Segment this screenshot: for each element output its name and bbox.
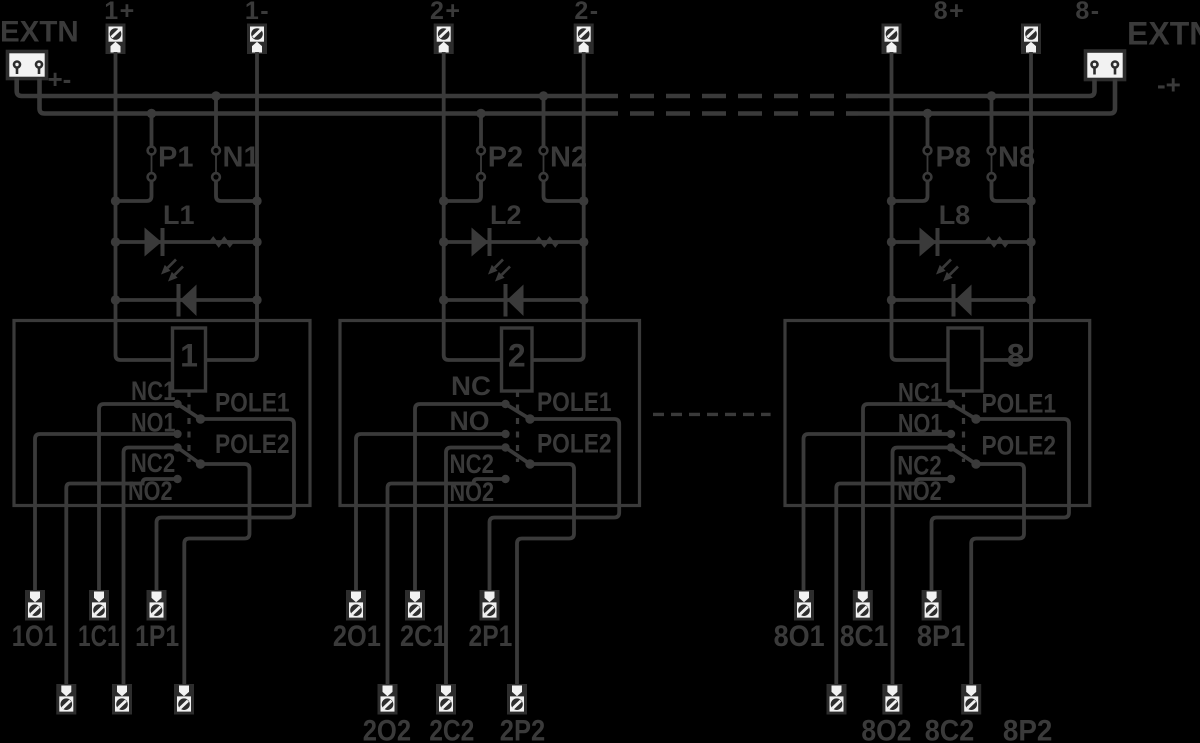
- svg-text:2C1: 2C1: [400, 620, 447, 653]
- svg-text:2-: 2-: [574, 0, 599, 25]
- svg-text:P1: P1: [158, 142, 193, 174]
- svg-text:-+: -+: [1157, 70, 1181, 100]
- svg-text:8O1: 8O1: [774, 620, 825, 653]
- svg-text:8P2: 8P2: [1003, 715, 1053, 743]
- svg-text:POLE2: POLE2: [215, 429, 290, 459]
- svg-text:NC: NC: [451, 371, 491, 401]
- svg-text:2C2: 2C2: [429, 715, 474, 743]
- svg-text:2+: 2+: [430, 0, 462, 25]
- svg-text:NO2: NO2: [897, 476, 942, 506]
- svg-text:POLE2: POLE2: [537, 429, 612, 459]
- svg-text:+-: +-: [48, 64, 72, 94]
- svg-text:EXTN: EXTN: [0, 16, 79, 49]
- svg-text:8C2: 8C2: [925, 715, 975, 743]
- svg-text:NO: NO: [450, 406, 490, 436]
- svg-text:NO1: NO1: [898, 409, 943, 439]
- svg-text:EXTN: EXTN: [1127, 15, 1200, 51]
- svg-text:N1: N1: [223, 142, 260, 174]
- svg-text:2P2: 2P2: [500, 715, 545, 743]
- svg-text:P8: P8: [936, 142, 971, 174]
- svg-text:8: 8: [1007, 338, 1025, 374]
- svg-text:N2: N2: [550, 142, 587, 174]
- svg-text:L1: L1: [163, 200, 195, 230]
- svg-text:POLE1: POLE1: [982, 389, 1057, 419]
- svg-text:8C1: 8C1: [840, 620, 888, 653]
- svg-text:N8: N8: [998, 142, 1035, 174]
- svg-text:8P1: 8P1: [917, 620, 965, 653]
- svg-text:1C1: 1C1: [78, 620, 120, 653]
- svg-text:1P1: 1P1: [135, 620, 179, 653]
- svg-text:NC1: NC1: [131, 376, 176, 406]
- svg-text:2O2: 2O2: [363, 715, 411, 743]
- svg-text:NC2: NC2: [450, 449, 495, 479]
- svg-text:1-: 1-: [245, 0, 270, 25]
- svg-text:P2: P2: [488, 142, 523, 174]
- svg-text:1+: 1+: [104, 0, 136, 25]
- svg-text:2: 2: [508, 338, 526, 374]
- svg-text:NC1: NC1: [898, 378, 943, 408]
- svg-text:L2: L2: [490, 200, 522, 230]
- svg-text:NO2: NO2: [128, 476, 173, 506]
- svg-text:8O2: 8O2: [861, 715, 911, 743]
- svg-text:2P1: 2P1: [469, 620, 513, 653]
- svg-text:L8: L8: [939, 200, 971, 230]
- svg-text:POLE2: POLE2: [982, 431, 1057, 461]
- svg-text:NO1: NO1: [131, 408, 176, 438]
- svg-text:1: 1: [180, 338, 198, 374]
- svg-text:POLE1: POLE1: [215, 388, 290, 418]
- svg-text:8+: 8+: [934, 0, 966, 25]
- svg-text:2O1: 2O1: [333, 620, 381, 653]
- svg-text:8-: 8-: [1075, 0, 1100, 25]
- svg-text:POLE1: POLE1: [537, 387, 612, 417]
- svg-text:NO2: NO2: [450, 477, 495, 507]
- svg-text:NC2: NC2: [131, 448, 176, 478]
- svg-text:1O1: 1O1: [12, 620, 57, 653]
